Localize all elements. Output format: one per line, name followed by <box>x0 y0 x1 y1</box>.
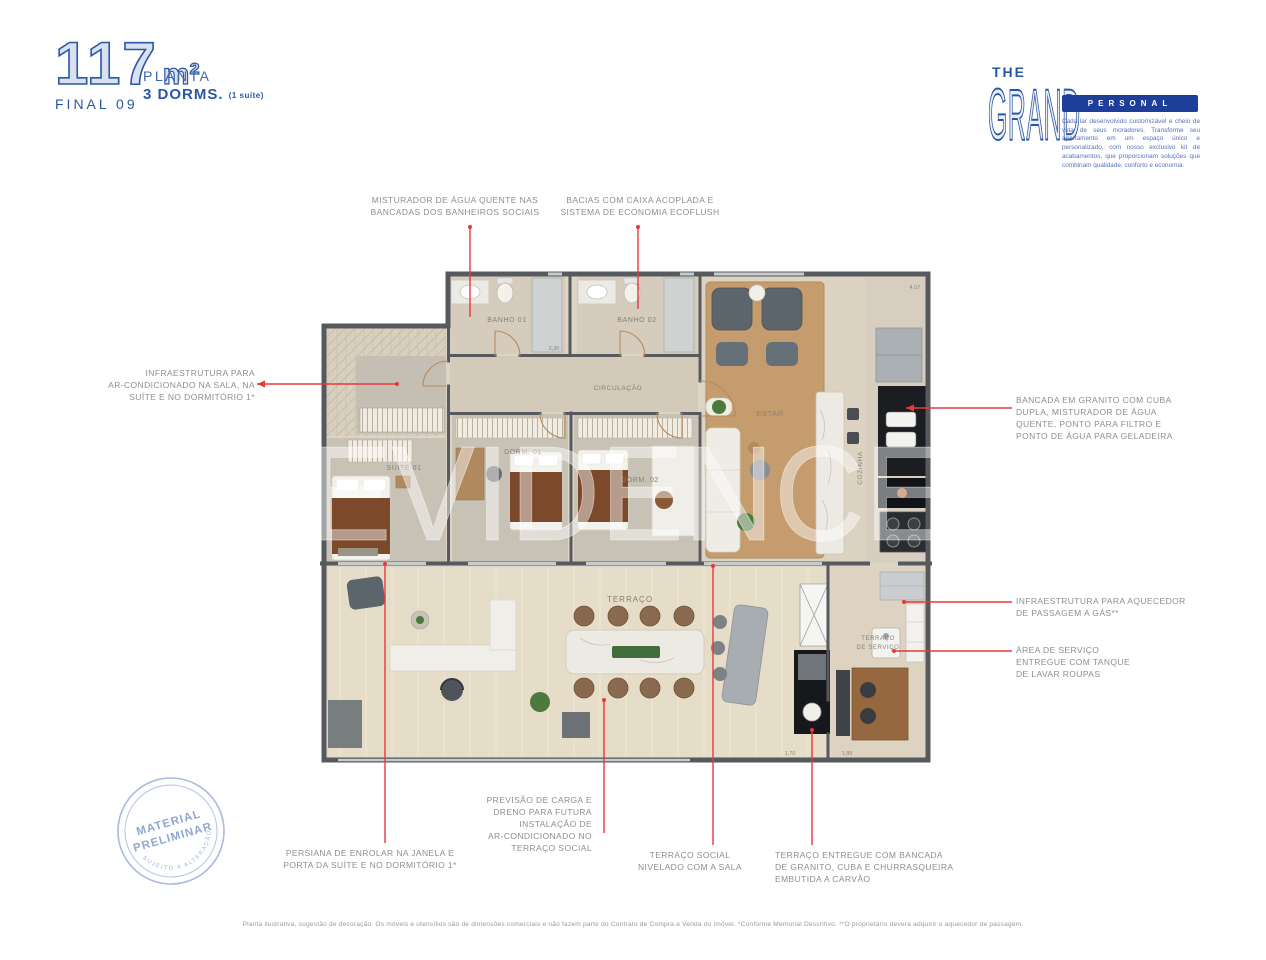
watermark-text: EVIDENCE <box>308 418 948 569</box>
annotation-terraco-entregue: TERRAÇO ENTREGUE COM BANCADA DE GRANITO,… <box>775 849 980 885</box>
label-circulacao: CIRCULAÇÃO <box>594 383 643 392</box>
annotation-bancada: BANCADA EM GRANITO COM CUBA DUPLA, MISTU… <box>1016 394 1221 442</box>
annotation-bacias: BACIAS COM CAIXA ACOPLADA E SISTEMA DE E… <box>515 194 765 218</box>
dim-banho: 2,30 <box>549 346 560 352</box>
annotation-previsao: PREVISÃO DE CARGA E DRENO PARA FUTURA IN… <box>420 794 592 854</box>
label-terraco-servico-1: TERRAÇO <box>861 636 895 642</box>
dim-estar: 4,07 <box>910 285 921 291</box>
dim-servico: 1,85 <box>842 751 853 757</box>
label-terraco: TERRAÇO <box>607 595 653 604</box>
label-estar: ESTAR <box>756 409 783 418</box>
annotation-area-servico: ÁREA DE SERVIÇO ENTREGUE COM TANQUE DE L… <box>1016 644 1201 680</box>
label-banho01: BANHO 01 <box>487 317 526 324</box>
label-banho02: BANHO 02 <box>617 317 656 324</box>
page: { "header": { "area_value": "117", "area… <box>0 0 1266 960</box>
disclaimer: Planta ilustrativa, sugestão de decoraçã… <box>0 921 1266 928</box>
annotation-infra-ar: INFRAESTRUTURA PARA AR-CONDICIONADO NA S… <box>58 367 255 403</box>
circulacao-floor <box>450 356 698 412</box>
preliminary-stamp: MATERIAL PRELIMINAR SUJEITO A ALTERAÇÃO <box>110 770 232 892</box>
dim-terraco: 1,70 <box>785 751 796 757</box>
annotation-aquecedor: INFRAESTRUTURA PARA AQUECEDOR DE PASSAGE… <box>1016 595 1231 619</box>
annotation-terraco-social: TERRAÇO SOCIAL NIVELADO COM A SALA <box>610 849 770 873</box>
